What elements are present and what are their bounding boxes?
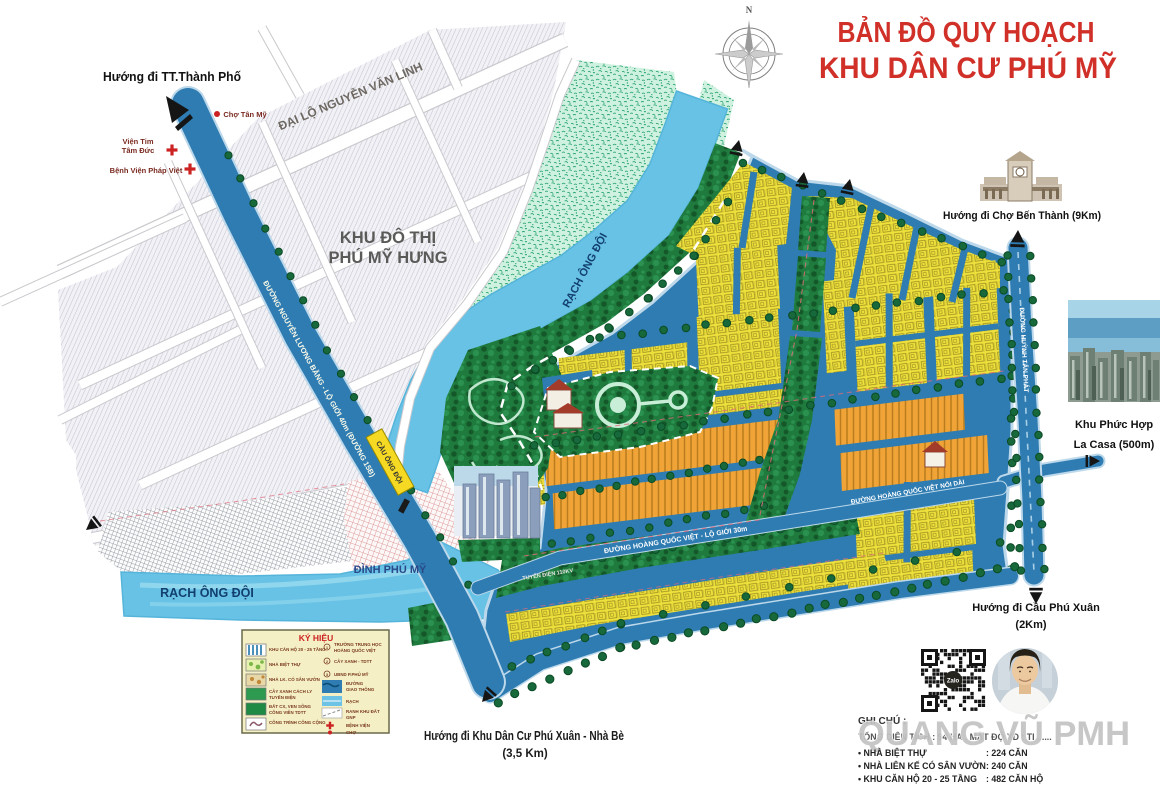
svg-text:BỆNH VIỆN: BỆNH VIỆN (346, 723, 370, 728)
svg-text:La Casa (500m): La Casa (500m) (1074, 439, 1155, 451)
svg-text:RẠCH: RẠCH (346, 699, 359, 704)
svg-text:Tâm Đức: Tâm Đức (122, 146, 155, 155)
svg-text:Hướng đi TT.Thành Phố: Hướng đi TT.Thành Phố (103, 70, 241, 84)
svg-text:• NHÀ BIỆT THỰ: • NHÀ BIỆT THỰ (858, 747, 927, 758)
svg-text:Khu Phức Hợp: Khu Phức Hợp (1075, 419, 1153, 431)
svg-text:TRƯỜNG TRUNG HỌC: TRƯỜNG TRUNG HỌC (334, 642, 382, 647)
svg-text:RẠCH ÔNG ĐỘI: RẠCH ÔNG ĐỘI (160, 585, 254, 600)
svg-text:KHU CĂN HỘ 20 - 25 TẦNG: KHU CĂN HỘ 20 - 25 TẦNG (269, 647, 326, 652)
svg-text:NHÀ LK. CÓ SÂN VƯỜN: NHÀ LK. CÓ SÂN VƯỜN (269, 677, 320, 682)
svg-text:CÂY XANH - TDTT: CÂY XANH - TDTT (334, 659, 372, 664)
svg-text:: 240 CĂN: : 240 CĂN (986, 761, 1028, 771)
svg-text:RANH KHU ĐẤT: RANH KHU ĐẤT (346, 709, 380, 714)
svg-text:ĐƯỜNG: ĐƯỜNG (346, 681, 364, 686)
svg-text:Bệnh Viện Pháp Việt: Bệnh Viện Pháp Việt (110, 166, 183, 175)
svg-text:: 224 CĂN: : 224 CĂN (986, 748, 1028, 758)
svg-text:ĐẤT CX, VEN SÔNG: ĐẤT CX, VEN SÔNG (269, 704, 312, 709)
svg-text:NHÀ BIỆT THỰ: NHÀ BIỆT THỰ (269, 662, 301, 667)
svg-text:BẢN ĐỒ QUY HOẠCH: BẢN ĐỒ QUY HOẠCH (838, 15, 1095, 49)
svg-text:PHÚ MỸ HƯNG: PHÚ MỸ HƯNG (328, 247, 447, 267)
svg-text:HOÀNG QUỐC VIỆT: HOÀNG QUỐC VIỆT (334, 648, 376, 653)
svg-text:KHU ĐÔ THỊ: KHU ĐÔ THỊ (340, 228, 436, 247)
svg-text:TUYẾN ĐIỆN: TUYẾN ĐIỆN (269, 695, 296, 700)
svg-text:(2Km): (2Km) (1015, 619, 1047, 631)
svg-text:QUANG VŨ PMH: QUANG VŨ PMH (858, 713, 1130, 753)
svg-text:Viện Tim: Viện Tim (123, 137, 154, 146)
svg-text:CHỢ: CHỢ (346, 730, 356, 735)
svg-text:(3,5 Km): (3,5 Km) (502, 748, 548, 760)
svg-text:KHU DÂN CƯ PHÚ MỸ: KHU DÂN CƯ PHÚ MỸ (819, 51, 1117, 85)
svg-text:CÔNG TRÌNH CÔNG CỘNG: CÔNG TRÌNH CÔNG CỘNG (269, 720, 326, 725)
svg-text:: 482 CĂN HỘ: : 482 CĂN HỘ (986, 773, 1043, 784)
svg-text:Hướng đi Chợ Bến Thành (9Km): Hướng đi Chợ Bến Thành (9Km) (943, 210, 1101, 222)
svg-text:• KHU CĂN HỘ 20 - 25 TẦNG: • KHU CĂN HỘ 20 - 25 TẦNG (858, 773, 977, 784)
svg-text:ĐÌNH PHÚ MỸ: ĐÌNH PHÚ MỸ (354, 563, 427, 576)
svg-text:KÝ HIỆU: KÝ HIỆU (299, 632, 333, 643)
svg-text:CÂY XANH CÁCH LY: CÂY XANH CÁCH LY (269, 689, 312, 694)
svg-text:• NHÀ LIÊN KẾ CÓ SÂN VƯỜN: • NHÀ LIÊN KẾ CÓ SÂN VƯỜN (858, 760, 986, 771)
svg-text:GNP: GNP (346, 715, 356, 720)
svg-text:N: N (746, 5, 753, 15)
svg-text:Hướng đi Cầu Phú Xuân: Hướng đi Cầu Phú Xuân (972, 602, 1100, 614)
svg-text:UBND P.PHÚ MỸ: UBND P.PHÚ MỸ (334, 672, 369, 677)
svg-text:Hướng đi Khu Dân Cư Phú Xuân -: Hướng đi Khu Dân Cư Phú Xuân - Nhà Bè (424, 729, 624, 743)
svg-text:Chợ Tân Mỹ: Chợ Tân Mỹ (223, 110, 267, 119)
svg-text:GIAO THÔNG: GIAO THÔNG (346, 687, 375, 692)
svg-text:Zalo: Zalo (947, 679, 960, 685)
svg-text:CÔNG VIÊN TDTT: CÔNG VIÊN TDTT (269, 710, 306, 715)
